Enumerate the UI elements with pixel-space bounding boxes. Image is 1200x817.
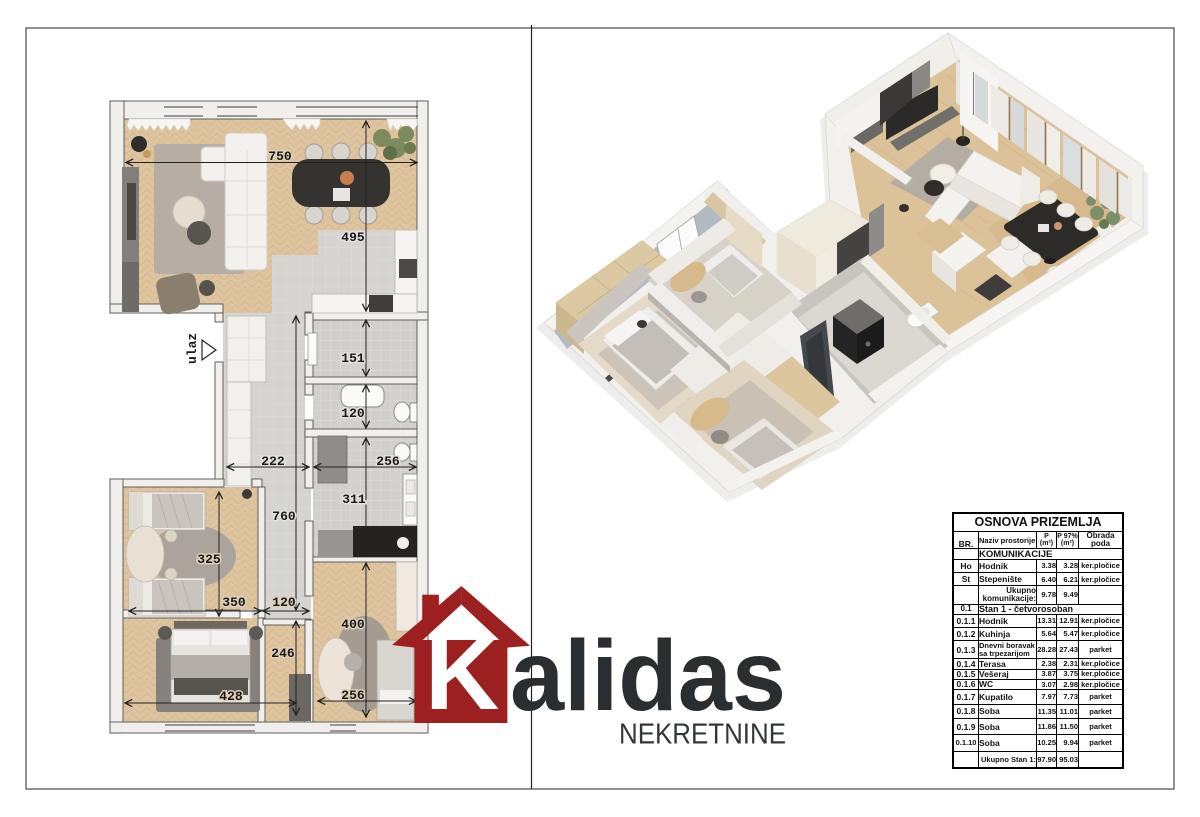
svg-text:256: 256 xyxy=(376,454,400,469)
svg-text:750: 750 xyxy=(268,149,292,164)
svg-text:325: 325 xyxy=(197,552,221,567)
svg-text:alidas: alidas xyxy=(510,620,786,732)
svg-text:350: 350 xyxy=(222,595,246,610)
svg-text:760: 760 xyxy=(272,509,296,524)
svg-text:311: 311 xyxy=(342,492,366,507)
svg-text:222: 222 xyxy=(261,454,285,469)
svg-text:NEKRETNINE: NEKRETNINE xyxy=(619,719,786,751)
svg-text:120: 120 xyxy=(341,406,365,421)
svg-text:400: 400 xyxy=(341,617,365,632)
svg-text:K: K xyxy=(425,616,499,731)
svg-text:246: 246 xyxy=(271,646,295,661)
svg-text:495: 495 xyxy=(341,230,365,245)
svg-text:120: 120 xyxy=(272,595,296,610)
svg-text:428: 428 xyxy=(219,689,243,704)
svg-text:256: 256 xyxy=(341,688,365,703)
svg-text:151: 151 xyxy=(341,351,365,366)
svg-text:ulaz: ulaz xyxy=(185,333,200,364)
